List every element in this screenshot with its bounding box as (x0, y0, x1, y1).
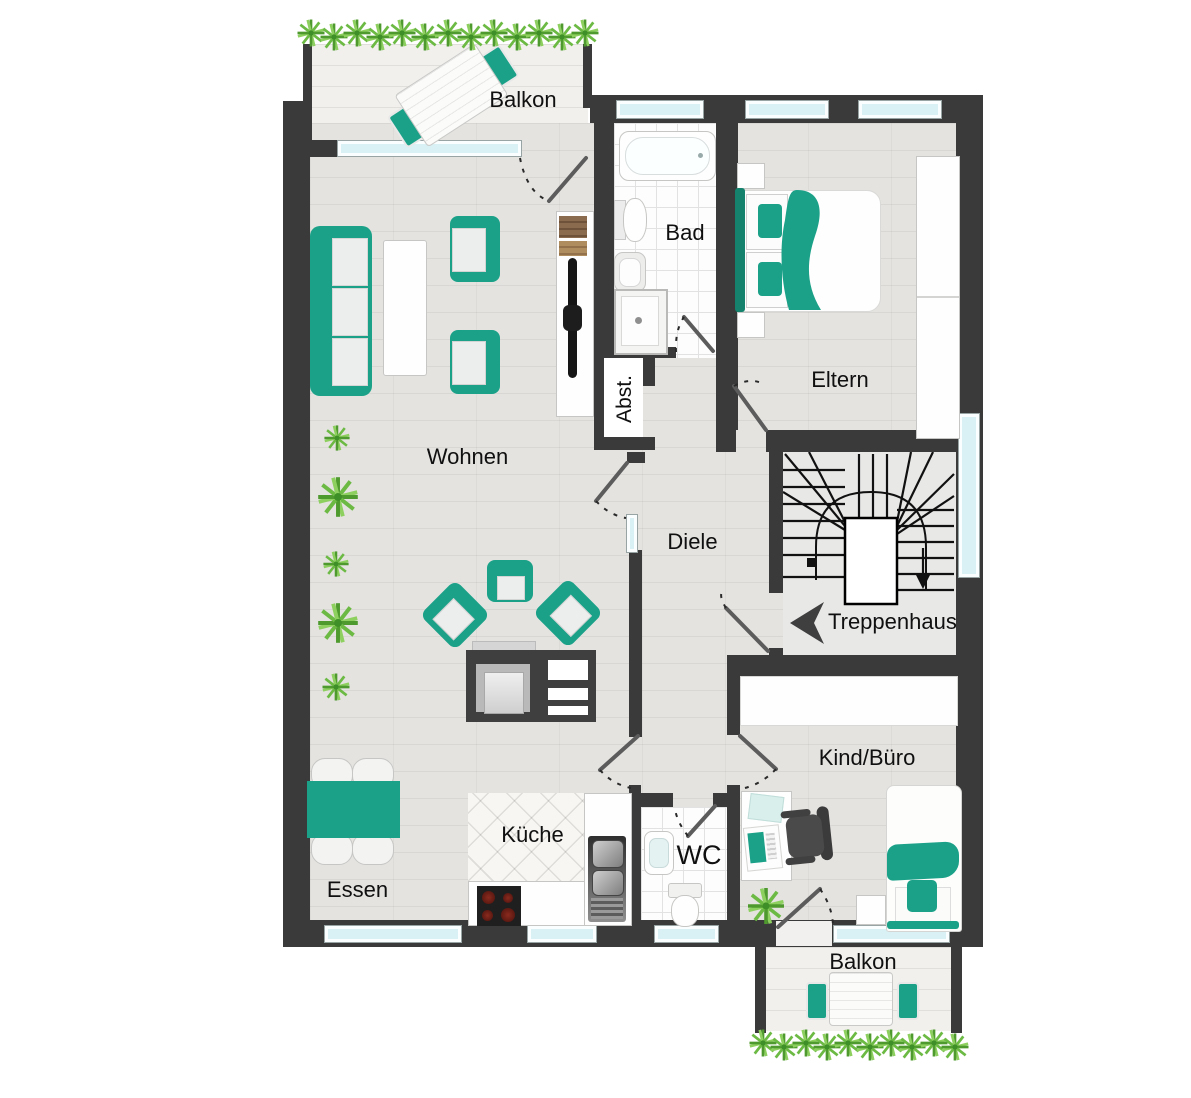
balcony-chair-icon (897, 982, 919, 1020)
washbasin-icon (644, 831, 674, 875)
room-label-kind-buero: Kind/Büro (797, 745, 937, 771)
room-label-abst: Abst. (613, 362, 637, 436)
wall-wc-north (713, 793, 740, 807)
wall-abst-south (594, 437, 655, 450)
plant-icon (323, 424, 351, 452)
plant-icon (316, 475, 360, 519)
wall-wc-north (629, 793, 673, 807)
window-eltern-1 (745, 100, 829, 119)
hedge-plants (296, 18, 596, 54)
plant-icon (940, 1032, 970, 1062)
books-icon (559, 216, 587, 238)
office-chair-icon (780, 804, 836, 869)
wardrobe-icon (740, 676, 958, 726)
room-label-bad: Bad (640, 220, 730, 246)
plant-icon (746, 886, 786, 926)
log-shelf-icon (540, 650, 596, 722)
room-label-balkon-top: Balkon (453, 87, 593, 113)
sink-icon (614, 252, 646, 292)
wall-treppenhaus-west (769, 452, 783, 593)
room-label-essen: Essen (315, 877, 400, 903)
wall-eltern-south (716, 430, 736, 452)
balcony-rail (951, 947, 962, 1033)
double-bed-icon (735, 188, 881, 312)
glass-door-panel (626, 514, 638, 553)
stove-icon (477, 886, 521, 926)
plant-icon (570, 18, 600, 48)
plant-icon (746, 886, 786, 931)
plant-icon (323, 424, 351, 457)
room-label-treppenhaus: Treppenhaus (828, 609, 958, 635)
plant-icon (321, 672, 351, 702)
room-label-diele: Diele (645, 529, 740, 555)
shower-icon (614, 289, 668, 355)
dining-table-icon (307, 781, 400, 838)
tv-icon (563, 305, 582, 331)
laptop-icon (743, 824, 783, 872)
window-kueche (527, 925, 597, 943)
fireplace-icon (466, 650, 540, 722)
paper-sheet-icon (748, 793, 785, 823)
window-essen (324, 925, 462, 943)
lounge-chair-icon (487, 560, 533, 602)
nightstand-icon (737, 312, 765, 338)
plant-icon (322, 550, 350, 578)
toilet-icon (671, 895, 699, 927)
window-eltern-2 (858, 100, 942, 119)
bathtub-icon (619, 131, 716, 181)
wall-segment (594, 347, 604, 450)
kitchen-sink-icon (588, 836, 626, 922)
floorplan: Balkon Bad Eltern Abst. Wohnen Diele Tre… (0, 0, 1191, 1098)
wall-abst-east (643, 358, 655, 386)
room-label-wohnen: Wohnen (405, 444, 530, 470)
room-label-balkon-bottom: Balkon (793, 949, 933, 975)
sofa-icon (310, 226, 372, 396)
room-label-kueche: Küche (485, 822, 580, 848)
wall-bad-west (594, 123, 614, 358)
plant-icon (316, 475, 360, 524)
wall-diele-west (629, 550, 642, 737)
balcony-table-icon (829, 972, 893, 1026)
window-treppenhaus (958, 413, 980, 578)
hedge-plants (748, 1028, 966, 1064)
wardrobe-icon (916, 156, 960, 439)
plant-icon (316, 601, 360, 650)
window-wc (654, 925, 719, 943)
balcony-rail (755, 947, 766, 1033)
armchair-icon (450, 330, 500, 394)
wall-outer-left (283, 101, 310, 947)
room-label-wc: WC (672, 840, 726, 871)
balcony-rail (303, 101, 312, 143)
armchair-icon (450, 216, 500, 282)
wall-segment (310, 140, 338, 157)
balcony-chair-icon (806, 982, 828, 1020)
plant-icon (316, 601, 360, 645)
single-bed-icon (886, 785, 960, 930)
nightstand-icon (737, 163, 765, 189)
books-icon (559, 241, 587, 256)
plant-icon (321, 672, 351, 707)
blanket-icon (735, 188, 881, 312)
coffee-table-icon (383, 240, 427, 376)
room-label-eltern: Eltern (780, 367, 900, 393)
wall-segment (627, 452, 645, 463)
wall-kind-west (727, 683, 740, 735)
nightstand-icon (856, 895, 886, 925)
plant-icon (322, 550, 350, 583)
window-bad (616, 100, 704, 119)
